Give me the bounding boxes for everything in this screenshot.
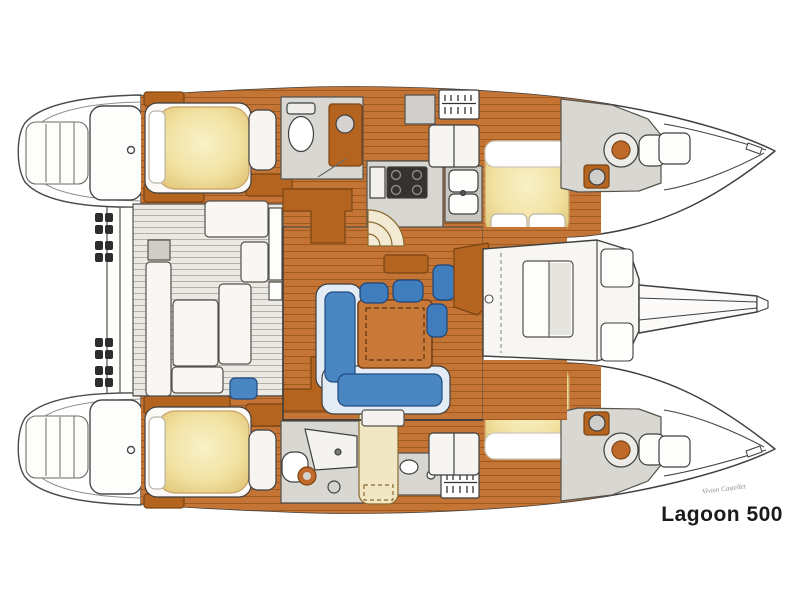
pillow-icon bbox=[149, 111, 165, 183]
sink-icon bbox=[336, 115, 354, 133]
sink-basin-icon bbox=[449, 170, 478, 192]
stool bbox=[393, 280, 423, 302]
bathroom-port bbox=[281, 97, 363, 179]
stool bbox=[433, 265, 455, 300]
cockpit-bench bbox=[205, 201, 268, 237]
stool bbox=[360, 283, 388, 303]
clutch-panel-icon bbox=[439, 90, 479, 119]
toilet-icon bbox=[289, 117, 314, 152]
cockpit-bench bbox=[219, 284, 251, 364]
forward-cockpit bbox=[483, 240, 639, 361]
cockpit-bench bbox=[241, 242, 268, 282]
transom-door bbox=[90, 106, 142, 200]
sink-icon bbox=[589, 415, 605, 431]
helm-seat-cushion bbox=[230, 378, 257, 399]
floorplan-canvas: Lagoon 500 Vivien Castellet bbox=[0, 0, 800, 600]
door-knob-icon bbox=[128, 147, 135, 154]
deck-hatch-icon bbox=[659, 133, 690, 164]
sink-basin-icon bbox=[449, 194, 478, 214]
cockpit-bench bbox=[172, 367, 223, 393]
sofa bbox=[338, 374, 442, 406]
pillow-icon bbox=[149, 417, 165, 489]
forward-seat bbox=[601, 323, 633, 361]
saloon-table bbox=[358, 300, 432, 368]
forward-seat bbox=[601, 249, 633, 287]
sliding-door bbox=[362, 410, 404, 426]
bathroom-starboard bbox=[281, 421, 363, 503]
double-bed bbox=[157, 411, 249, 493]
cockpit-table bbox=[173, 300, 218, 366]
bowsprit bbox=[639, 285, 768, 333]
model-title: Lagoon 500 bbox=[583, 503, 783, 527]
aft-cockpit bbox=[133, 201, 283, 399]
double-bed bbox=[157, 107, 249, 189]
sofa bbox=[325, 292, 355, 382]
sink-icon bbox=[589, 169, 605, 185]
stool bbox=[427, 304, 447, 337]
deck-hatch-icon bbox=[659, 436, 690, 467]
cockpit-bench bbox=[146, 262, 171, 396]
transom-steps bbox=[26, 122, 88, 184]
